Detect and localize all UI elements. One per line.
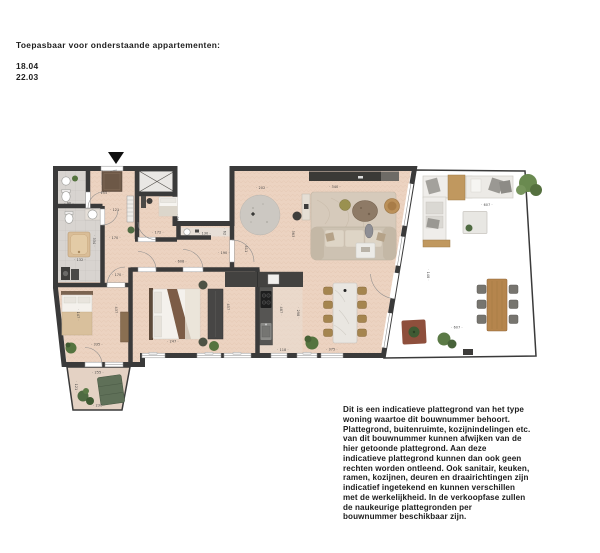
outdoor-dining-set <box>477 279 518 331</box>
dimension-label: · 298 · <box>296 307 300 319</box>
shaft <box>139 171 175 192</box>
stone-table <box>353 201 378 222</box>
dimension-label: · 172 · <box>152 231 164 235</box>
plant-icon <box>516 174 542 196</box>
kitchen <box>260 287 273 345</box>
window <box>321 353 343 358</box>
wc-icon <box>62 192 70 202</box>
wardrobe <box>121 312 129 342</box>
dimension-label: · 147 · <box>76 309 80 321</box>
dimension-label: · 607 · <box>451 326 463 330</box>
window <box>224 352 251 357</box>
dimension-label: · 334 · <box>92 235 96 247</box>
dimension-label: · 170 · <box>112 273 124 277</box>
plant-icon <box>448 340 457 349</box>
radiator-icon <box>127 196 134 222</box>
page-title: Toepasbaar voor onderstaande appartement… <box>16 40 220 50</box>
dimension-label: · 375 · <box>326 348 338 352</box>
dimension-label: · 202 · <box>256 186 268 190</box>
disclaimer-text: Dit is een indicatieve plattegrond van h… <box>343 405 581 522</box>
apartment-list: 18.04 22.03 <box>16 61 38 83</box>
sofa <box>311 224 396 260</box>
dimension-label: · 411 · <box>244 243 248 255</box>
tv-console <box>309 172 381 182</box>
terrace-furniture <box>401 174 542 355</box>
dimension-label: · 148 · <box>426 269 430 281</box>
dimension-label: · 457 · <box>226 301 230 313</box>
plant-icon <box>83 388 89 394</box>
cooktop-icon <box>261 291 272 308</box>
window <box>271 353 287 358</box>
coffee-table <box>463 212 487 234</box>
dimension-label: · 340 · <box>329 185 341 189</box>
plant-icon <box>199 281 208 290</box>
dimension-label: · 121 · <box>74 381 78 393</box>
bed <box>159 197 178 216</box>
pouf <box>340 200 351 211</box>
wood-console <box>423 240 450 247</box>
dimension-label: · 607 · <box>481 203 493 207</box>
dimension-label: · 487 · <box>279 304 283 316</box>
washbasin <box>62 177 70 185</box>
outdoor-sofa <box>97 374 125 405</box>
entrance-closet <box>102 172 122 192</box>
apartment-number: 22.03 <box>16 72 38 83</box>
chair-icon <box>147 198 153 204</box>
dimension-label: · 190 · <box>218 251 230 255</box>
dimension-label: · 247 · <box>167 340 179 344</box>
floorplan-page: Toepasbaar voor onderstaande appartement… <box>0 0 600 553</box>
sink-icon <box>261 323 272 340</box>
window <box>197 352 221 357</box>
washbasin <box>88 210 97 219</box>
washbasin <box>184 229 190 235</box>
dimension-label: · 335 · <box>91 343 103 347</box>
dryer-icon <box>71 269 79 280</box>
dimension-label: · 170 · <box>109 236 121 240</box>
plant-icon <box>72 176 78 182</box>
dimension-label: · 62 · <box>223 228 227 237</box>
plant-icon <box>209 341 219 351</box>
plant-icon <box>466 225 473 232</box>
apartment-number: 18.04 <box>16 61 38 72</box>
plant-icon <box>128 227 135 234</box>
desk <box>141 196 146 208</box>
dimension-label: · 253 · <box>175 214 179 226</box>
round-rug <box>240 195 280 235</box>
dimension-label: · 130 · <box>199 232 211 236</box>
dimension-label: · 437 · <box>114 304 118 316</box>
entrance-arrow <box>108 152 124 164</box>
dimension-label: · 255 · <box>92 371 104 375</box>
wood-table <box>448 175 465 200</box>
floor-plan: · 90 ·· 155 ·· 121 ·· 170 ·· 334 ·· 132 … <box>25 140 555 430</box>
outdoor-lounge-sofa <box>423 175 472 247</box>
dimension-label: · 132 · <box>74 258 86 262</box>
closet-cabinets <box>225 272 303 287</box>
dimension-label: · 90 · <box>64 202 73 206</box>
dimension-label: · 121 · <box>110 208 122 212</box>
plant-icon <box>199 338 208 347</box>
bathtub <box>68 232 90 257</box>
lounge-mat <box>401 319 426 344</box>
chair-icon <box>293 212 302 221</box>
window <box>142 352 165 357</box>
oven-icon <box>268 275 279 285</box>
dimension-label: · 118 · <box>277 348 289 352</box>
sculpture <box>365 224 373 238</box>
dimension-label: · 608 · <box>175 260 187 264</box>
window <box>297 352 317 357</box>
plant-icon <box>305 336 312 343</box>
window <box>105 362 123 367</box>
dimension-label: · 155 · <box>98 191 110 195</box>
wardrobe <box>208 289 223 339</box>
bbq-icon <box>463 349 473 355</box>
dimension-label: · 230 · <box>93 404 105 408</box>
daybed <box>466 176 513 198</box>
dining-table <box>333 283 357 343</box>
dimension-label: · 363 · <box>291 228 295 240</box>
wc-icon <box>65 214 73 224</box>
bed <box>149 288 200 340</box>
